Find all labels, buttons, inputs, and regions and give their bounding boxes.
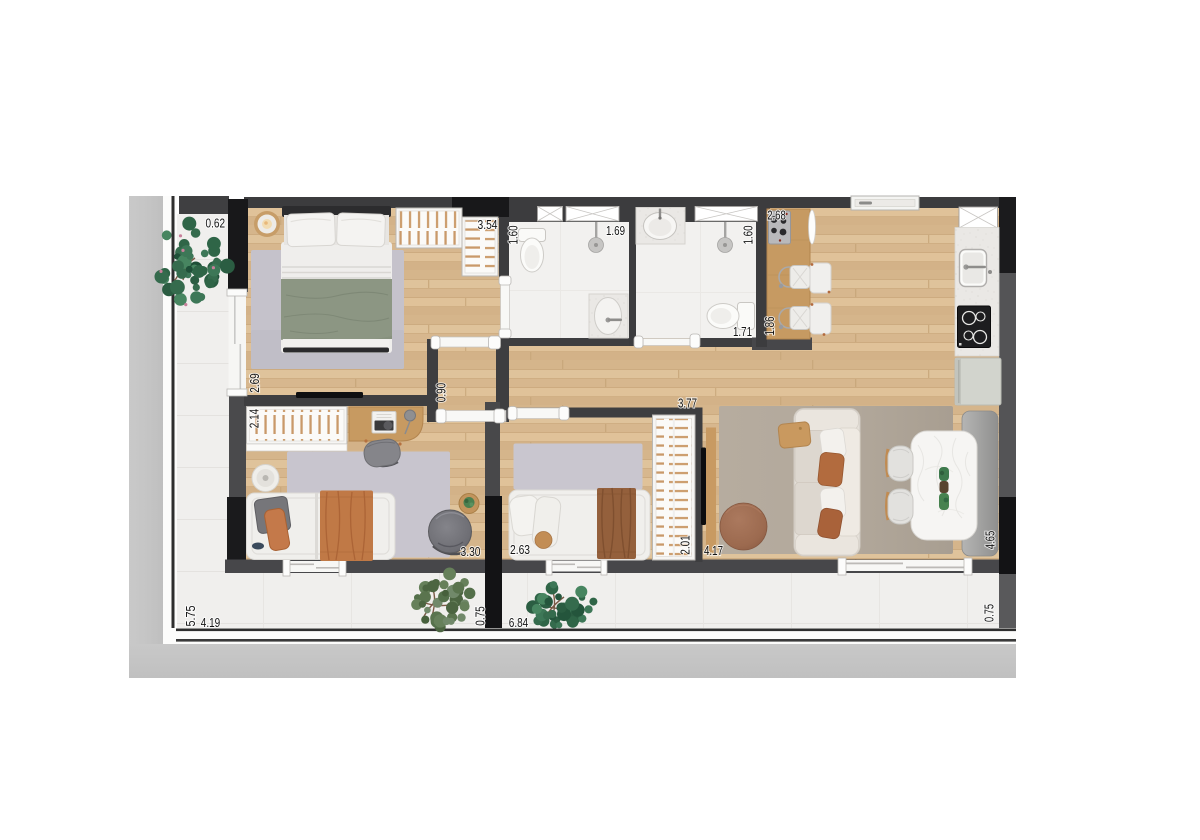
svg-text:2.63: 2.63 [510,542,530,557]
svg-text:1.71: 1.71 [733,324,752,339]
svg-text:1.60: 1.60 [741,226,756,245]
svg-text:2.68: 2.68 [767,208,786,223]
svg-text:2.69: 2.69 [247,373,262,393]
svg-text:1.60: 1.60 [506,226,521,245]
svg-text:1.69: 1.69 [606,223,625,238]
svg-text:2.14: 2.14 [247,409,262,429]
svg-text:4.65: 4.65 [983,531,998,550]
svg-text:3.77: 3.77 [678,396,697,411]
svg-text:0.90: 0.90 [434,383,449,403]
svg-text:0.75: 0.75 [473,606,488,626]
svg-text:3.30: 3.30 [461,544,481,559]
svg-text:2.01: 2.01 [678,535,693,555]
svg-text:0.75: 0.75 [982,604,997,622]
svg-text:5.75: 5.75 [183,606,198,627]
svg-text:3.54: 3.54 [478,217,498,232]
svg-text:6.84: 6.84 [509,615,529,630]
svg-text:1.86: 1.86 [762,317,777,336]
svg-text:4.19: 4.19 [201,615,221,630]
svg-text:0.62: 0.62 [206,216,226,231]
svg-text:4.17: 4.17 [704,543,723,558]
